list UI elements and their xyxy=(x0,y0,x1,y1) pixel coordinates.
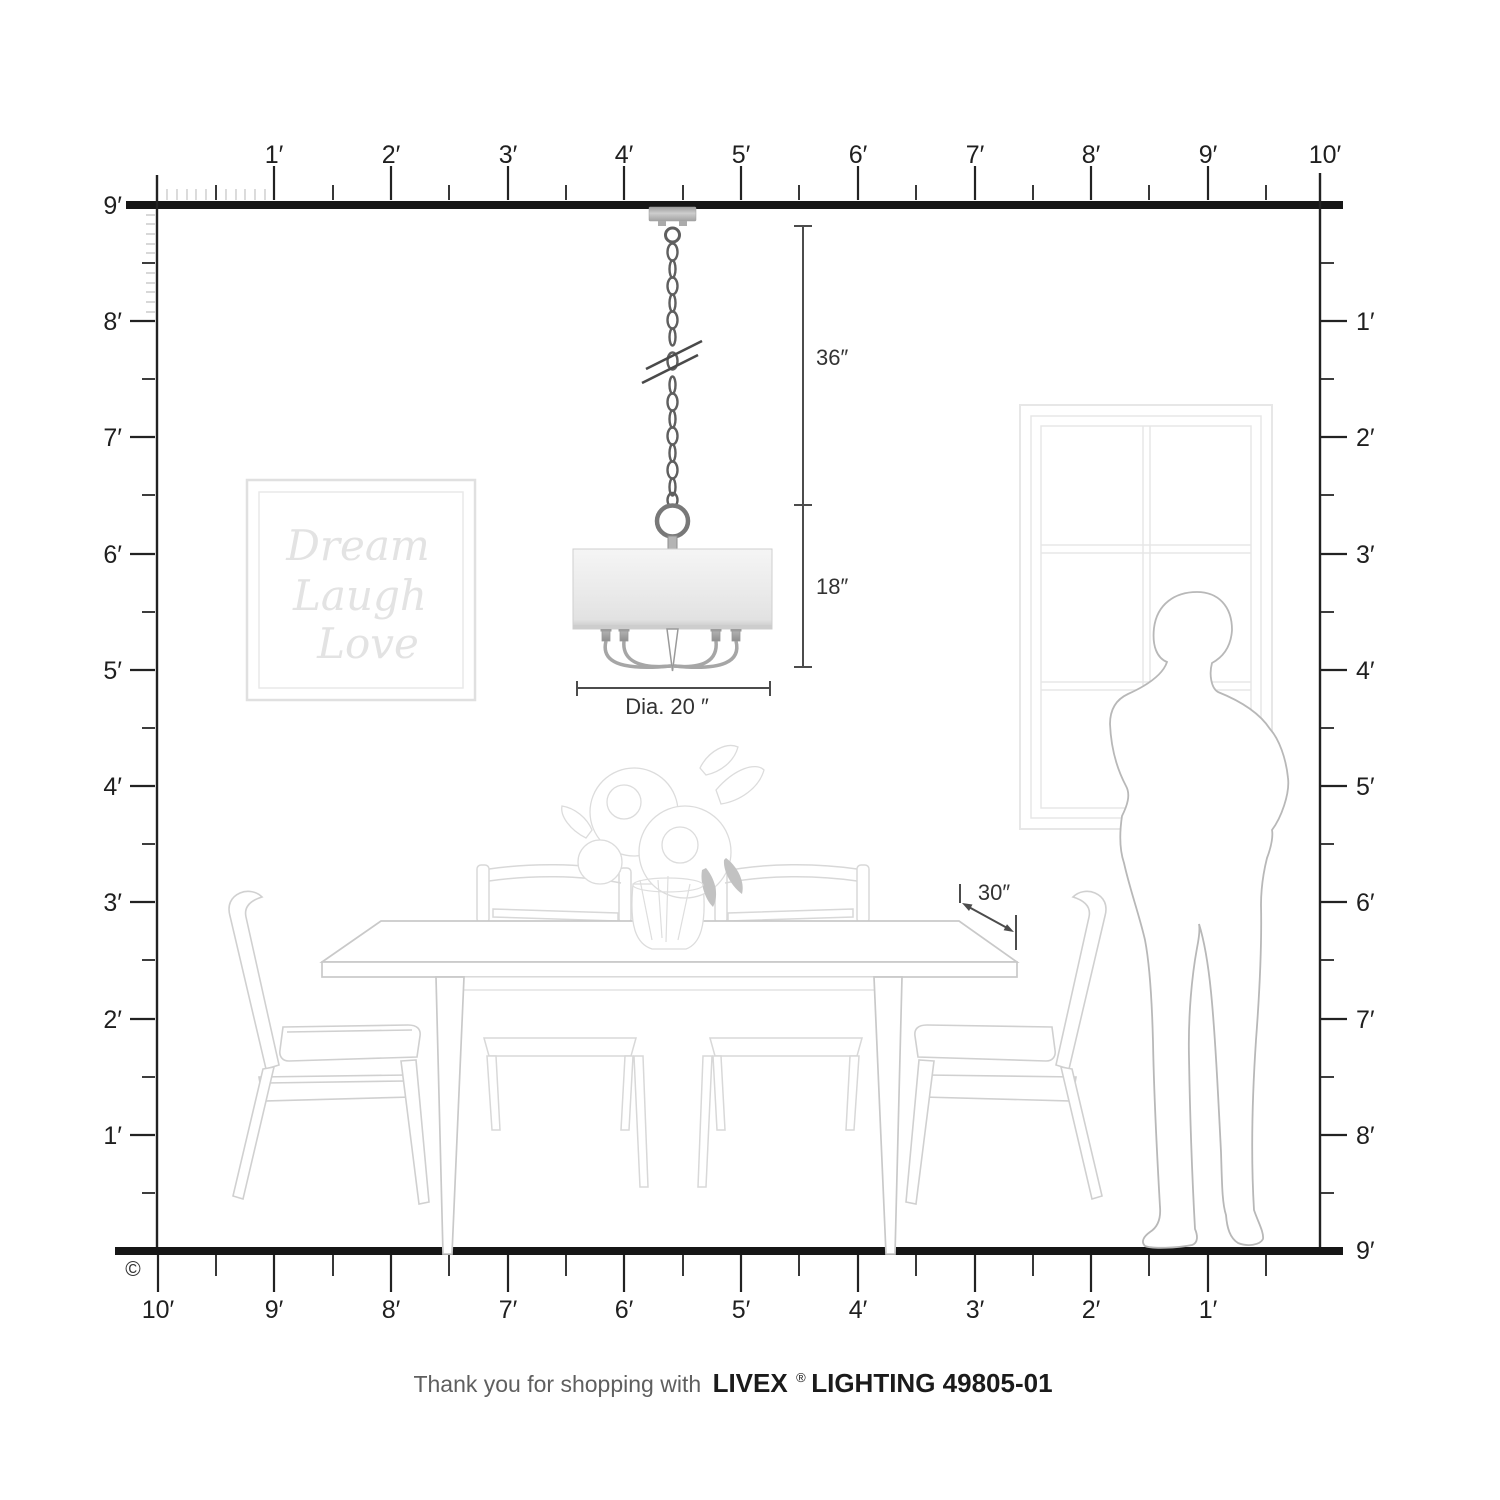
chain-link xyxy=(670,445,676,462)
chair-leg xyxy=(846,1056,859,1130)
ceiling-line xyxy=(126,201,1343,209)
right-ruler-labels: 1′ 2′ 3′ 4′ 5′ 6′ 7′ 8′ 9′ xyxy=(1356,308,1375,1265)
left-ruler-label: 1′ xyxy=(103,1122,122,1150)
bottom-ruler-label: 2′ xyxy=(1082,1296,1101,1324)
chain-link xyxy=(668,278,678,295)
cup-lip xyxy=(619,629,630,632)
cup xyxy=(620,630,628,641)
shade-height-label: 18″ xyxy=(816,574,848,599)
dining-chair-back-left xyxy=(477,865,648,1187)
chain-link xyxy=(670,329,676,346)
chair-front-leg xyxy=(906,1060,934,1204)
right-ruler-label: 7′ xyxy=(1356,1006,1375,1034)
chair-lower-rail xyxy=(728,909,853,921)
chain-link xyxy=(668,312,678,329)
wall-art-text-line1: Dream xyxy=(285,521,429,570)
wall-art-frame: Dream Laugh Love xyxy=(247,480,475,700)
right-ruler-label: 3′ xyxy=(1356,541,1375,569)
cup-lip xyxy=(711,629,722,632)
right-ruler-label: 2′ xyxy=(1356,424,1375,452)
blossom xyxy=(639,806,731,898)
top-ruler-labels: 1′ 2′ 3′ 4′ 5′ 6′ 7′ 8′ 9′ 10′ xyxy=(265,141,1342,169)
chair-leg xyxy=(634,1056,648,1187)
chain-link xyxy=(670,411,676,428)
leaf xyxy=(700,746,738,775)
bottom-ruler-label: 4′ xyxy=(849,1296,868,1324)
bottom-ruler-label: 7′ xyxy=(499,1296,518,1324)
left-ruler-labels: 9′ 8′ 7′ 6′ 5′ 4′ 3′ 2′ 1′ xyxy=(103,192,122,1150)
drum-shade xyxy=(573,549,772,629)
chair-back-post xyxy=(229,891,279,1069)
registered-trademark-icon: ® xyxy=(796,1370,806,1385)
chair-side-rail xyxy=(923,1075,1076,1101)
cup-lip xyxy=(731,629,742,632)
chair-rear-leg xyxy=(1061,1067,1102,1199)
footer-product: LIGHTING 49805-01 xyxy=(811,1368,1052,1398)
diagram-canvas: 1′ 2′ 3′ 4′ 5′ 6′ 7′ 8′ 9′ 10′ 9′ 8′ 7′ … xyxy=(0,0,1500,1500)
chain-link xyxy=(670,295,676,312)
left-ruler-label: 2′ xyxy=(103,1006,122,1034)
stem xyxy=(668,536,677,550)
wall-art-text-line3: Love xyxy=(316,619,419,668)
bottom-ruler-label: 1′ xyxy=(1199,1296,1218,1324)
left-ruler-label: 8′ xyxy=(103,308,122,336)
right-ruler-label: 1′ xyxy=(1356,308,1375,336)
left-ruler-label: 4′ xyxy=(103,773,122,801)
top-ruler-label: 8′ xyxy=(1082,141,1101,169)
chair-top-rail xyxy=(725,865,857,883)
top-ruler: 1′ 2′ 3′ 4′ 5′ 6′ 7′ 8′ 9′ 10′ xyxy=(126,141,1343,209)
bottom-ruler-label: 5′ xyxy=(732,1296,751,1324)
bottom-ruler-label: 10′ xyxy=(142,1296,175,1324)
top-ruler-label: 10′ xyxy=(1309,141,1342,169)
chain-link xyxy=(668,244,678,261)
shade-diameter-label: Dia. 20 ″ xyxy=(625,694,709,719)
top-ruler-label: 4′ xyxy=(615,141,634,169)
chain-link xyxy=(668,394,678,411)
chair-post xyxy=(619,868,631,923)
arm xyxy=(674,641,716,667)
canopy-tab xyxy=(679,221,687,226)
top-ruler-label: 6′ xyxy=(849,141,868,169)
chair-rear-leg xyxy=(233,1067,274,1199)
table-leg xyxy=(436,977,464,1254)
right-ruler-label: 8′ xyxy=(1356,1122,1375,1150)
chair-leg xyxy=(713,1056,725,1130)
footer-brand: LIVEX xyxy=(713,1368,789,1398)
right-ruler-minor-ticks xyxy=(1321,263,1334,1193)
chair-leg xyxy=(487,1056,500,1130)
top-ruler-label: 9′ xyxy=(1199,141,1218,169)
leaf xyxy=(562,806,592,838)
right-ruler-label: 9′ xyxy=(1356,1237,1375,1265)
pendant-light xyxy=(573,207,772,671)
chair-seat xyxy=(710,1038,862,1056)
top-ruler-label: 2′ xyxy=(382,141,401,169)
chair-seat xyxy=(484,1038,636,1056)
top-ruler-major-ticks xyxy=(274,166,1208,200)
leaf xyxy=(716,767,764,804)
blossom xyxy=(578,840,622,884)
top-ruler-label: 5′ xyxy=(732,141,751,169)
cup-lip xyxy=(601,629,612,632)
chair-leg xyxy=(698,1056,712,1187)
chain-link xyxy=(668,428,678,445)
wall-art-text-line2: Laugh xyxy=(292,571,427,620)
right-ruler-label: 5′ xyxy=(1356,773,1375,801)
height-dimension-lines xyxy=(794,226,812,667)
table-apron xyxy=(461,977,878,990)
hook-ring xyxy=(666,228,680,242)
left-ruler-minor-ticks xyxy=(142,263,155,1193)
footer-note: Thank you for shopping with LIVEX ® LIGH… xyxy=(413,1368,1052,1398)
chain-link xyxy=(668,462,678,479)
bottom-ruler-label: 8′ xyxy=(382,1296,401,1324)
table-leg xyxy=(874,977,902,1254)
left-ruler: 9′ 8′ 7′ 6′ 5′ 4′ 3′ 2′ 1′ xyxy=(103,175,157,1251)
arrowhead-icon xyxy=(1004,924,1014,932)
cup xyxy=(732,630,740,641)
bottom-ruler-labels: 10′ 9′ 8′ 7′ 6′ 5′ 4′ 3′ 2′ 1′ xyxy=(142,1296,1218,1324)
left-ruler-label: 6′ xyxy=(103,541,122,569)
left-ruler-label: 5′ xyxy=(103,657,122,685)
chain-link xyxy=(670,377,676,394)
left-ruler-label: 7′ xyxy=(103,424,122,452)
hang-ring xyxy=(657,506,688,537)
arrowhead-icon xyxy=(962,903,973,911)
height-dimension xyxy=(794,226,812,667)
chain xyxy=(668,244,678,508)
bottom-ruler: 10′ 9′ 8′ 7′ 6′ 5′ 4′ 3′ 2′ 1′ xyxy=(115,1247,1343,1324)
top-ruler-label: 1′ xyxy=(265,141,284,169)
bottom-ruler-label: 6′ xyxy=(615,1296,634,1324)
chair-back-post xyxy=(1056,891,1106,1069)
chair-front-leg xyxy=(401,1060,429,1204)
ceiling-canopy xyxy=(649,207,696,221)
cup xyxy=(602,630,610,641)
chair-post xyxy=(477,865,489,923)
chair-lower-rail xyxy=(493,909,618,921)
right-ruler: 1′ 2′ 3′ 4′ 5′ 6′ 7′ 8′ 9′ xyxy=(1320,173,1375,1265)
bottom-ruler-label: 3′ xyxy=(966,1296,985,1324)
chair-seat xyxy=(915,1025,1055,1061)
chain-link xyxy=(670,261,676,278)
table-edge xyxy=(322,962,1017,977)
chair-post xyxy=(857,865,869,923)
footer-prefix: Thank you for shopping with xyxy=(413,1371,701,1397)
copyright-symbol: © xyxy=(125,1258,141,1281)
cup xyxy=(712,630,720,641)
top-ruler-label: 3′ xyxy=(499,141,518,169)
right-ruler-label: 4′ xyxy=(1356,657,1375,685)
chair-leg xyxy=(621,1056,633,1130)
chain-length-label: 36″ xyxy=(816,345,848,370)
left-ruler-label: 9′ xyxy=(103,192,122,220)
canopy-tab xyxy=(658,221,666,226)
left-ruler-label: 3′ xyxy=(103,889,122,917)
dining-chair-back-right xyxy=(698,865,869,1187)
bottom-ruler-label: 9′ xyxy=(265,1296,284,1324)
arm xyxy=(624,641,671,667)
chair-side-rail xyxy=(259,1075,412,1101)
top-ruler-label: 7′ xyxy=(966,141,985,169)
product-dimension-diagram: 1′ 2′ 3′ 4′ 5′ 6′ 7′ 8′ 9′ 10′ 9′ 8′ 7′ … xyxy=(0,0,1500,1500)
right-ruler-label: 6′ xyxy=(1356,889,1375,917)
table-clearance-label: 30″ xyxy=(978,880,1010,905)
